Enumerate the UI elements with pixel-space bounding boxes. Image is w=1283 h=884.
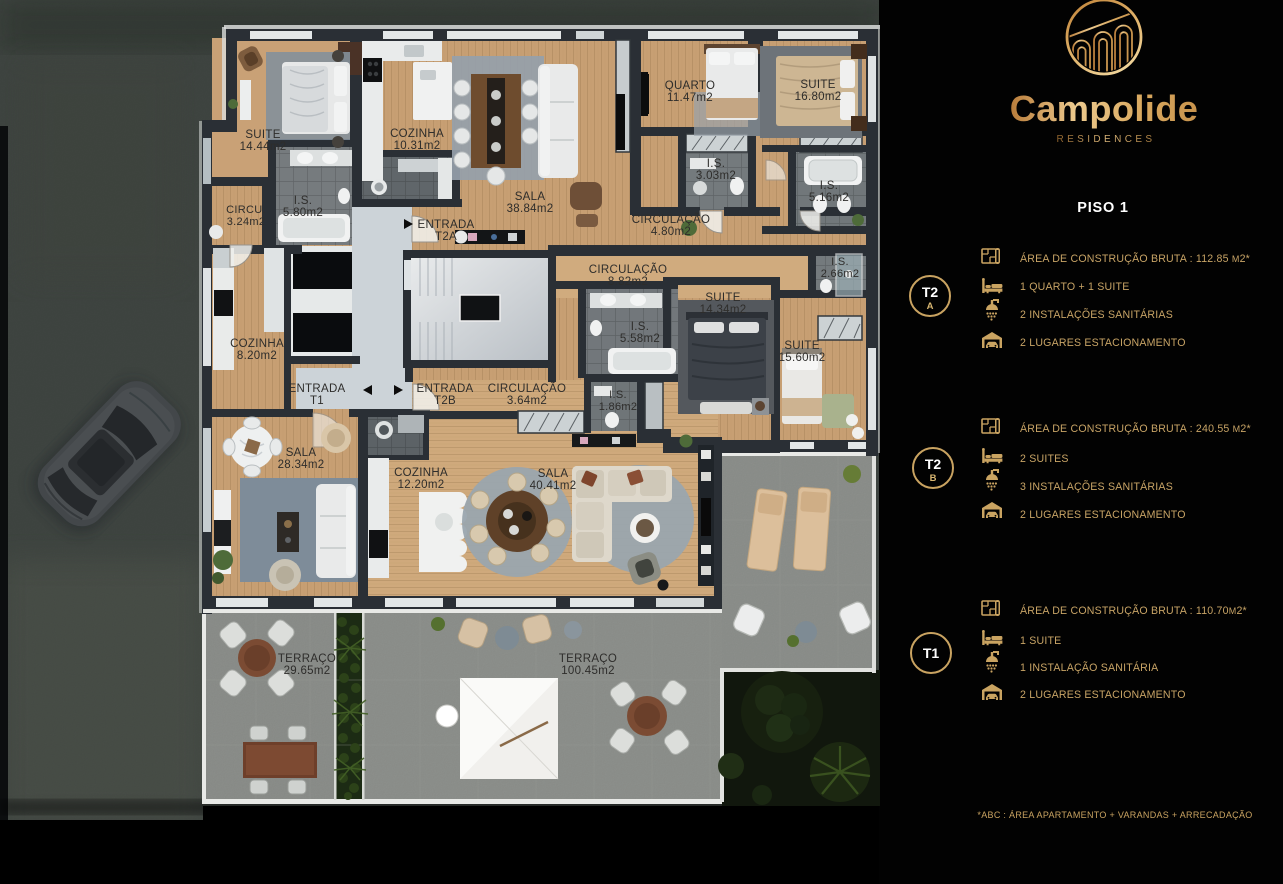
svg-text:ÁREA DE CONSTRUÇÃO BRUTA : 24: ÁREA DE CONSTRUÇÃO BRUTA : 240.55 M2* (1020, 422, 1251, 435)
svg-text:PISO 1: PISO 1 (1077, 200, 1129, 216)
svg-text:3.64m2: 3.64m2 (507, 395, 547, 407)
svg-text:5.80m2: 5.80m2 (283, 207, 323, 219)
svg-text:SUITE: SUITE (800, 79, 835, 91)
svg-text:ENTRADA: ENTRADA (416, 383, 473, 395)
svg-text:2 LUGARES ESTACIONAMENTO: 2 LUGARES ESTACIONAMENTO (1020, 509, 1186, 521)
svg-text:I.S.: I.S. (294, 195, 312, 207)
svg-text:I.S.: I.S. (831, 256, 849, 268)
svg-text:4.80m2: 4.80m2 (651, 226, 691, 238)
svg-text:ÁREA DE CONSTRUÇÃO BRUTA : 11: ÁREA DE CONSTRUÇÃO BRUTA : 110.70M2* (1020, 604, 1247, 617)
svg-text:CIRCU.: CIRCU. (226, 204, 266, 216)
svg-text:1.86m2: 1.86m2 (599, 401, 638, 413)
svg-text:12.20m2: 12.20m2 (398, 479, 445, 491)
svg-text:I.S.: I.S. (820, 180, 838, 192)
svg-text:28.34m2: 28.34m2 (278, 459, 325, 471)
svg-text:SALA: SALA (286, 447, 317, 459)
svg-text:A: A (927, 301, 934, 312)
svg-text:QUARTO: QUARTO (665, 80, 716, 92)
svg-text:I.S.: I.S. (631, 321, 649, 333)
svg-text:8.82m2: 8.82m2 (608, 276, 648, 288)
svg-text:2 INSTALAÇÕES SANITÁRIAS: 2 INSTALAÇÕES SANITÁRIAS (1020, 308, 1173, 321)
svg-text:SUITE: SUITE (784, 340, 819, 352)
svg-text:COZINHA: COZINHA (394, 467, 448, 479)
svg-text:40.41m2: 40.41m2 (530, 480, 577, 492)
svg-text:CIRCULAÇÃO: CIRCULAÇÃO (632, 213, 710, 226)
svg-text:3.03m2: 3.03m2 (696, 170, 736, 182)
svg-text:8.20m2: 8.20m2 (237, 350, 277, 362)
svg-text:*ABC : ÁREA APARTAMENTO + VAR: *ABC : ÁREA APARTAMENTO + VARANDAS + ARR… (977, 810, 1252, 820)
svg-text:1 QUARTO + 1 SUITE: 1 QUARTO + 1 SUITE (1020, 281, 1129, 293)
svg-text:ÁREA DE CONSTRUÇÃO BRUTA : 11: ÁREA DE CONSTRUÇÃO BRUTA : 112.85 M2* (1020, 252, 1250, 265)
svg-text:10.31m2: 10.31m2 (394, 140, 441, 152)
svg-text:SALA: SALA (538, 468, 569, 480)
svg-text:29.65m2: 29.65m2 (284, 665, 331, 677)
svg-text:T2: T2 (922, 284, 939, 300)
svg-text:11.47m2: 11.47m2 (667, 92, 713, 104)
svg-text:2 LUGARES ESTACIONAMENTO: 2 LUGARES ESTACIONAMENTO (1020, 689, 1186, 701)
svg-text:ENTRADA: ENTRADA (417, 219, 474, 231)
svg-text:14.44m2: 14.44m2 (240, 141, 287, 153)
svg-text:CIRCULAÇÃO: CIRCULAÇÃO (589, 263, 667, 276)
svg-text:I.S.: I.S. (609, 389, 627, 401)
svg-text:5.16m2: 5.16m2 (809, 192, 849, 204)
svg-text:15.60m2: 15.60m2 (779, 352, 826, 364)
svg-text:Campolide: Campolide (1010, 88, 1199, 129)
svg-text:T2A: T2A (435, 231, 457, 243)
svg-text:TERRAÇO: TERRAÇO (559, 653, 617, 665)
svg-text:I.S.: I.S. (707, 158, 725, 170)
svg-text:100.45m2: 100.45m2 (561, 665, 615, 677)
svg-text:3 INSTALAÇÕES SANITÁRIAS: 3 INSTALAÇÕES SANITÁRIAS (1020, 480, 1173, 493)
svg-text:T1: T1 (310, 395, 324, 407)
svg-text:3.24m2: 3.24m2 (227, 216, 266, 228)
svg-text:TERRAÇO: TERRAÇO (278, 653, 336, 665)
svg-text:38.84m2: 38.84m2 (507, 203, 554, 215)
svg-text:COZINHA: COZINHA (390, 128, 444, 140)
svg-text:ENTRADA: ENTRADA (288, 383, 345, 395)
svg-text:14.34m2: 14.34m2 (700, 304, 747, 316)
svg-text:1 INSTALAÇÃO SANITÁRIA: 1 INSTALAÇÃO SANITÁRIA (1020, 661, 1159, 674)
svg-text:SUITE: SUITE (705, 292, 740, 304)
svg-text:5.58m2: 5.58m2 (620, 333, 660, 345)
svg-text:RESIDENCES: RESIDENCES (1056, 134, 1155, 145)
svg-text:T2: T2 (925, 456, 942, 472)
svg-text:B: B (930, 473, 937, 484)
svg-text:2.66m2: 2.66m2 (821, 268, 860, 280)
svg-text:16.80m2: 16.80m2 (795, 91, 842, 103)
svg-text:2 SUITES: 2 SUITES (1020, 453, 1069, 465)
svg-text:T2B: T2B (434, 395, 456, 407)
svg-text:T1: T1 (923, 645, 940, 661)
svg-text:2 LUGARES ESTACIONAMENTO: 2 LUGARES ESTACIONAMENTO (1020, 337, 1186, 349)
svg-text:SUITE: SUITE (245, 129, 280, 141)
svg-text:COZINHA: COZINHA (230, 338, 284, 350)
svg-text:SALA: SALA (515, 191, 546, 203)
svg-text:1 SUITE: 1 SUITE (1020, 635, 1061, 647)
svg-text:CIRCULAÇÃO: CIRCULAÇÃO (488, 382, 566, 395)
